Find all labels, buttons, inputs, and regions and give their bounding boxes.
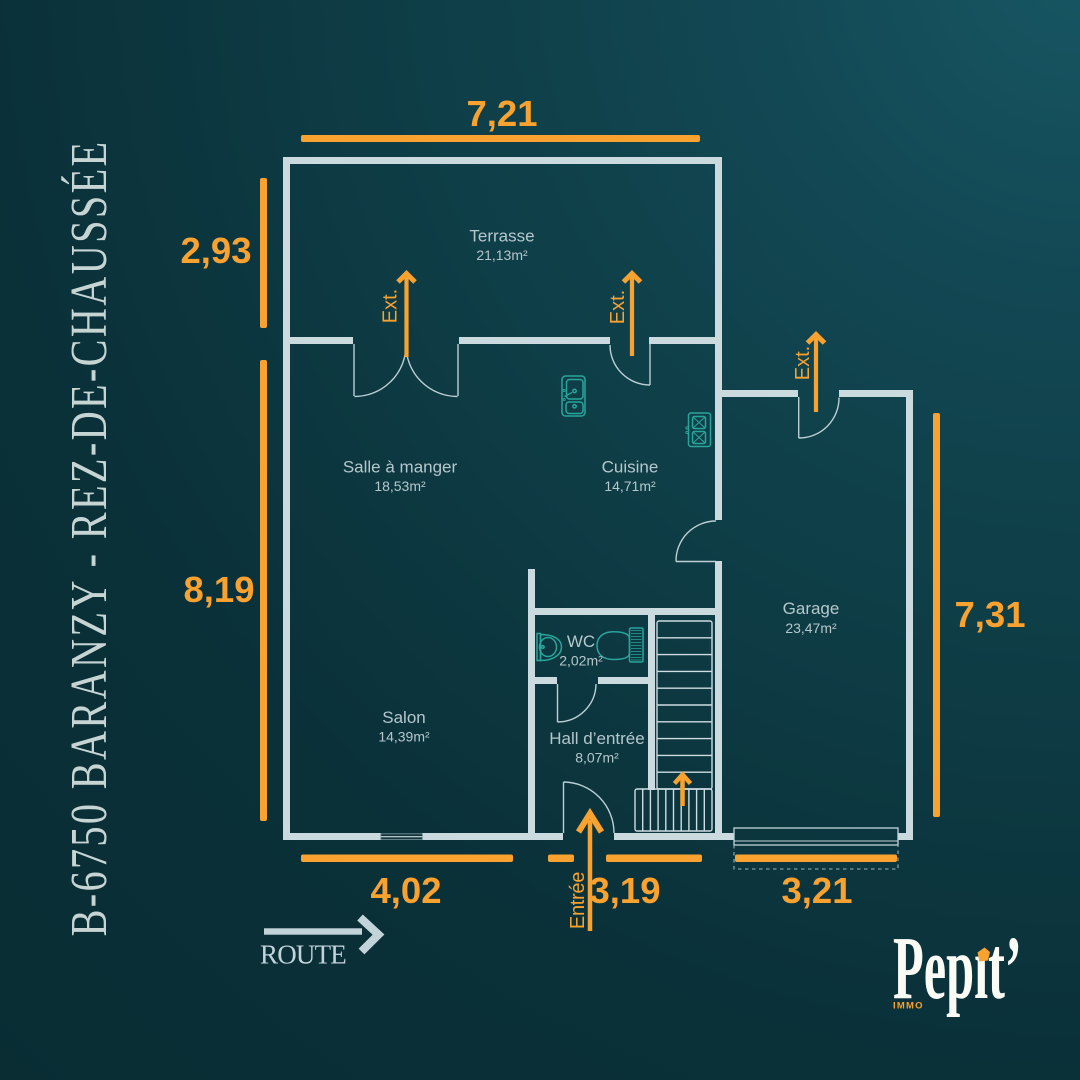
svg-text:Hall d’entrée: Hall d’entrée — [549, 729, 644, 748]
svg-text:7,21: 7,21 — [466, 93, 537, 134]
svg-text:2,93: 2,93 — [180, 230, 251, 271]
svg-text:Ext.: Ext. — [607, 290, 629, 324]
svg-text:Ext.: Ext. — [792, 346, 814, 380]
svg-text:2,02m²: 2,02m² — [559, 653, 603, 669]
svg-text:Ext.: Ext. — [380, 289, 402, 323]
svg-text:3,21: 3,21 — [781, 870, 852, 911]
svg-text:7,31: 7,31 — [954, 594, 1025, 635]
svg-text:Salon: Salon — [382, 708, 425, 727]
svg-text:IMMO: IMMO — [893, 1001, 924, 1012]
svg-text:18,53m²: 18,53m² — [374, 478, 426, 494]
svg-text:14,39m²: 14,39m² — [378, 729, 430, 745]
svg-text:23,47m²: 23,47m² — [785, 620, 837, 636]
svg-text:Garage: Garage — [783, 599, 840, 618]
svg-text:ROUTE: ROUTE — [260, 940, 346, 970]
svg-text:Salle à manger: Salle à manger — [343, 458, 458, 477]
svg-text:14,71m²: 14,71m² — [604, 478, 656, 494]
svg-text:8,07m²: 8,07m² — [575, 750, 619, 766]
svg-text:8,19: 8,19 — [183, 569, 254, 610]
svg-text:Entrée: Entrée — [567, 872, 589, 929]
svg-text:WC: WC — [567, 632, 595, 651]
svg-text:4,02: 4,02 — [370, 870, 441, 911]
svg-text:Cuisine: Cuisine — [602, 458, 659, 477]
svg-text:3,19: 3,19 — [589, 870, 660, 911]
svg-text:21,13m²: 21,13m² — [476, 247, 528, 263]
svg-text:B-6750 BARANZY - REZ-DE-CHAUSS: B-6750 BARANZY - REZ-DE-CHAUSSÉE — [61, 140, 118, 937]
svg-text:Terrasse: Terrasse — [469, 227, 534, 246]
